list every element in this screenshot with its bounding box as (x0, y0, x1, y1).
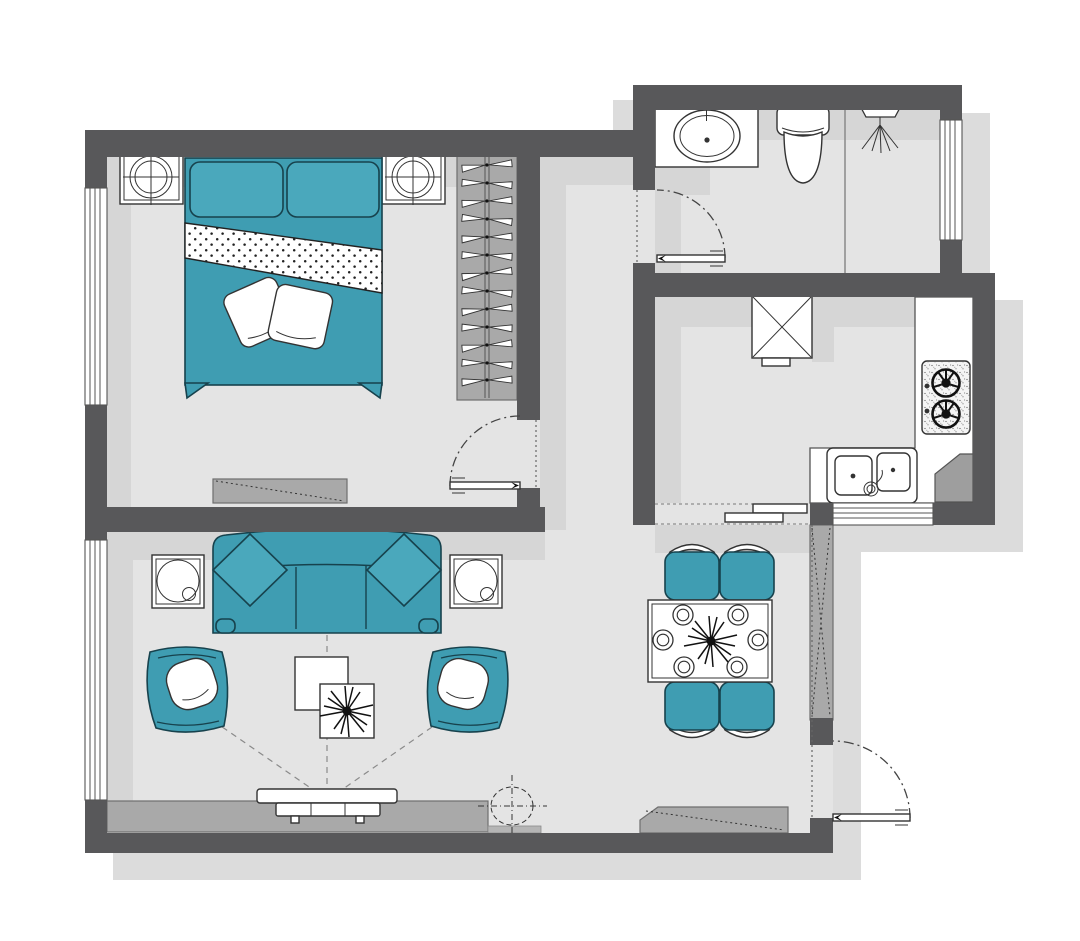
nightstand-right (382, 150, 445, 205)
bathroom-window (940, 120, 962, 240)
bolster-pillow-left (190, 162, 283, 217)
double-bed (185, 158, 382, 398)
sofa (213, 529, 441, 633)
wardrobe (457, 152, 517, 400)
armchair-left (147, 647, 227, 732)
dining-table (648, 600, 772, 682)
dining-chair-top-left (665, 545, 719, 601)
kitchen-sink (827, 448, 917, 503)
living-window (85, 540, 107, 800)
bolster-pillow-right (287, 162, 379, 217)
dining-chair-bottom-right (720, 682, 774, 738)
floor-plan-canvas (0, 0, 1080, 941)
side-table-left (152, 555, 204, 608)
gas-stove (922, 361, 970, 434)
vanity-sink (655, 103, 758, 167)
armchair-right (427, 647, 507, 732)
bed-pillow-2 (267, 283, 335, 351)
nightstand-left (120, 150, 183, 205)
floor-plan (0, 0, 1080, 941)
dining-area (648, 545, 774, 738)
kitchen-window (833, 503, 933, 525)
bedroom-window (85, 188, 107, 405)
dining-chair-bottom-left (665, 682, 719, 738)
side-table-right (450, 555, 502, 608)
bedroom-dresser (213, 479, 347, 503)
shoe-cabinet (640, 807, 788, 833)
dining-chair-top-right (720, 545, 774, 601)
refrigerator (752, 296, 812, 366)
tall-cabinet (810, 525, 833, 720)
